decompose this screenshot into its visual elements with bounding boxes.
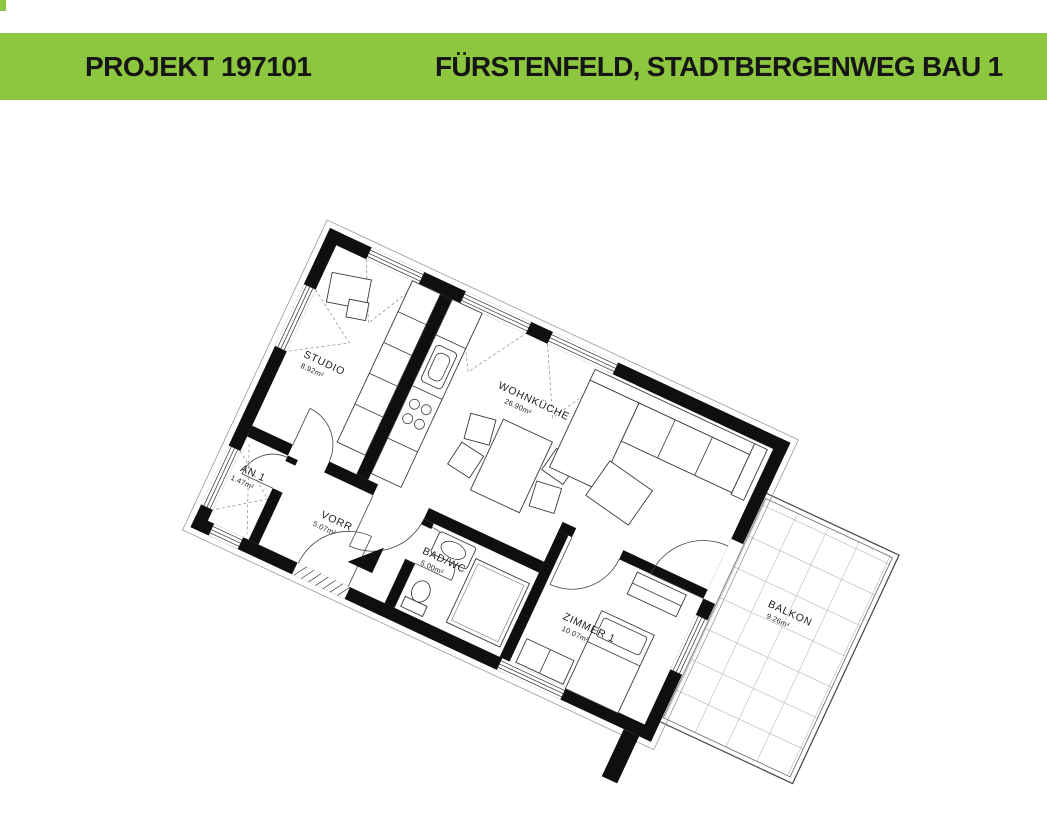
apartment-plan: STUDIO 8.92m² WOHNKÜCHE 26.90m² AN 1 1.4…	[163, 220, 925, 840]
floorplan-svg: STUDIO 8.92m² WOHNKÜCHE 26.90m² AN 1 1.4…	[0, 0, 1047, 840]
